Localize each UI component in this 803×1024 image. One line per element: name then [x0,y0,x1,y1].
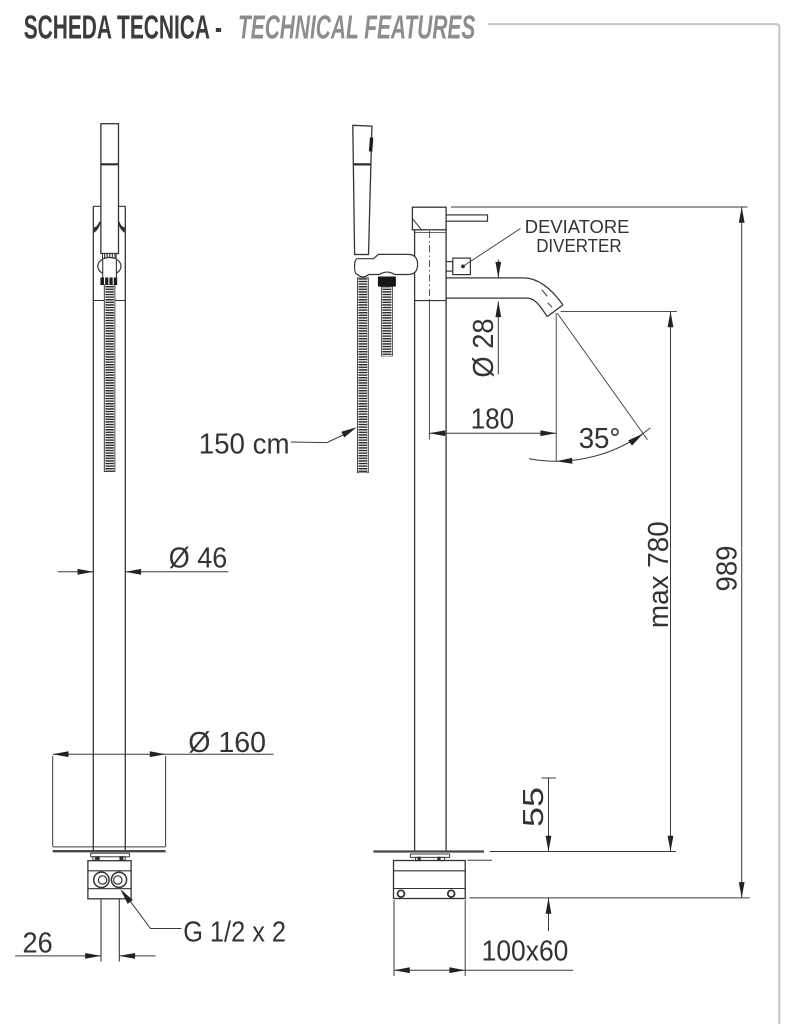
svg-text:55: 55 [518,787,550,827]
svg-text:max 780: max 780 [643,521,675,628]
svg-text:180: 180 [471,404,515,436]
svg-text:DIVERTER: DIVERTER [536,235,621,256]
svg-text:26: 26 [23,928,53,960]
svg-text:Ø 28: Ø 28 [468,318,500,377]
svg-text:Ø 46: Ø 46 [169,543,228,575]
svg-text:150 cm: 150 cm [199,429,290,461]
svg-text:989: 989 [712,546,744,592]
svg-text:SCHEDA TECNICA -: SCHEDA TECNICA - [24,9,222,46]
svg-text:35°: 35° [579,423,621,455]
svg-text:G 1/2 x 2: G 1/2 x 2 [183,917,286,949]
svg-text:TECHNICAL FEATURES: TECHNICAL FEATURES [238,9,475,46]
svg-text:100x60: 100x60 [482,936,569,968]
svg-text:DEVIATORE: DEVIATORE [525,216,630,237]
svg-text:Ø 160: Ø 160 [188,727,266,759]
